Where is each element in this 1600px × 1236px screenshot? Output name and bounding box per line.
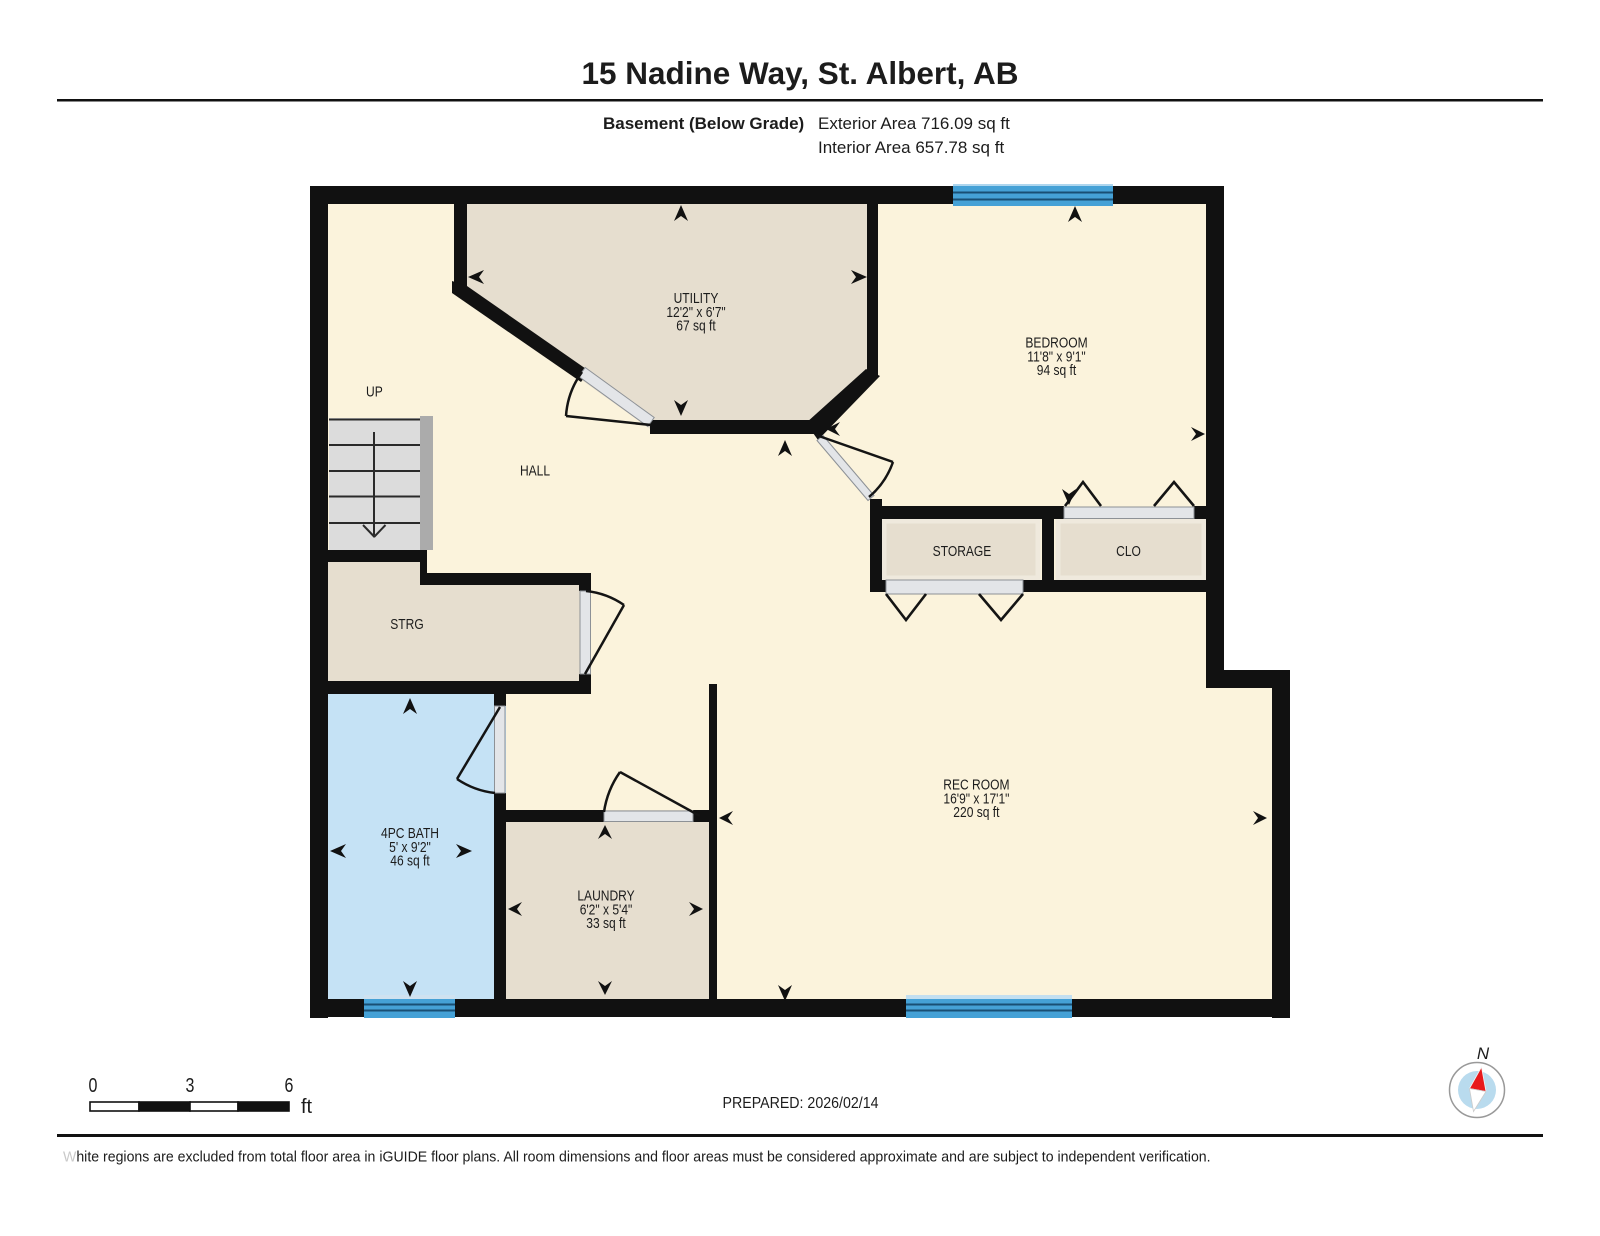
svg-text:HALL: HALL: [520, 462, 550, 478]
svg-text:15 Nadine Way, St. Albert, AB: 15 Nadine Way, St. Albert, AB: [581, 55, 1018, 91]
svg-text:STORAGE: STORAGE: [933, 543, 992, 559]
svg-text:UP: UP: [366, 383, 383, 399]
svg-text:CLO: CLO: [1116, 543, 1141, 559]
svg-text:Interior Area 657.78 sq ft: Interior Area 657.78 sq ft: [818, 138, 1004, 157]
svg-text:ft: ft: [301, 1096, 313, 1118]
svg-text:67 sq ft: 67 sq ft: [676, 318, 716, 334]
svg-text:3: 3: [186, 1074, 195, 1096]
svg-text:33 sq ft: 33 sq ft: [586, 915, 626, 931]
svg-text:46 sq ft: 46 sq ft: [390, 853, 430, 869]
svg-text:0: 0: [89, 1074, 98, 1096]
svg-text:Basement (Below Grade): Basement (Below Grade): [603, 114, 804, 133]
svg-text:6: 6: [285, 1074, 294, 1096]
svg-text:220 sq ft: 220 sq ft: [953, 804, 999, 820]
svg-text:N: N: [1477, 1044, 1490, 1063]
svg-text:PREPARED: 2026/02/14: PREPARED: 2026/02/14: [723, 1095, 879, 1112]
svg-text:STRG: STRG: [390, 616, 423, 632]
svg-text:Exterior Area 716.09 sq ft: Exterior Area 716.09 sq ft: [818, 114, 1010, 133]
svg-text:White regions are excluded fro: White regions are excluded from total fl…: [63, 1149, 1211, 1165]
svg-text:94 sq ft: 94 sq ft: [1037, 362, 1077, 378]
